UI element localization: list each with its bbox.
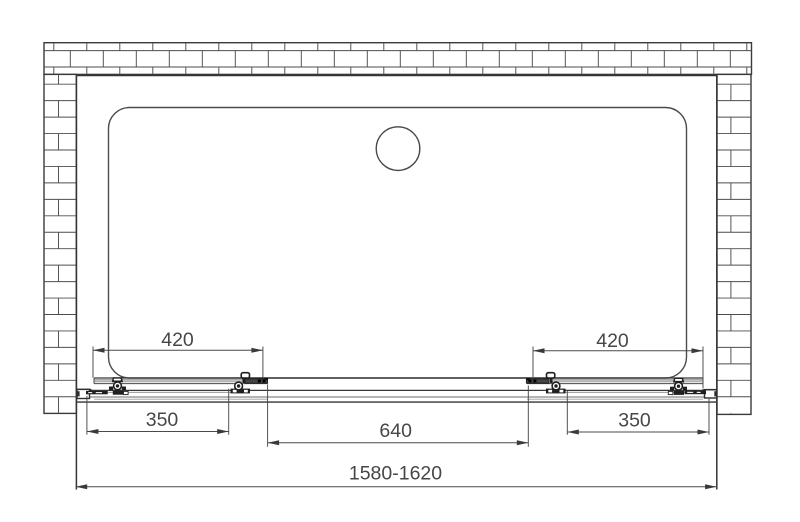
svg-text:420: 420 — [596, 330, 629, 352]
svg-text:350: 350 — [618, 410, 651, 432]
svg-text:350: 350 — [146, 409, 179, 431]
svg-text:420: 420 — [161, 329, 194, 351]
svg-text:1580-1620: 1580-1620 — [349, 462, 442, 484]
svg-text:640: 640 — [379, 420, 412, 442]
